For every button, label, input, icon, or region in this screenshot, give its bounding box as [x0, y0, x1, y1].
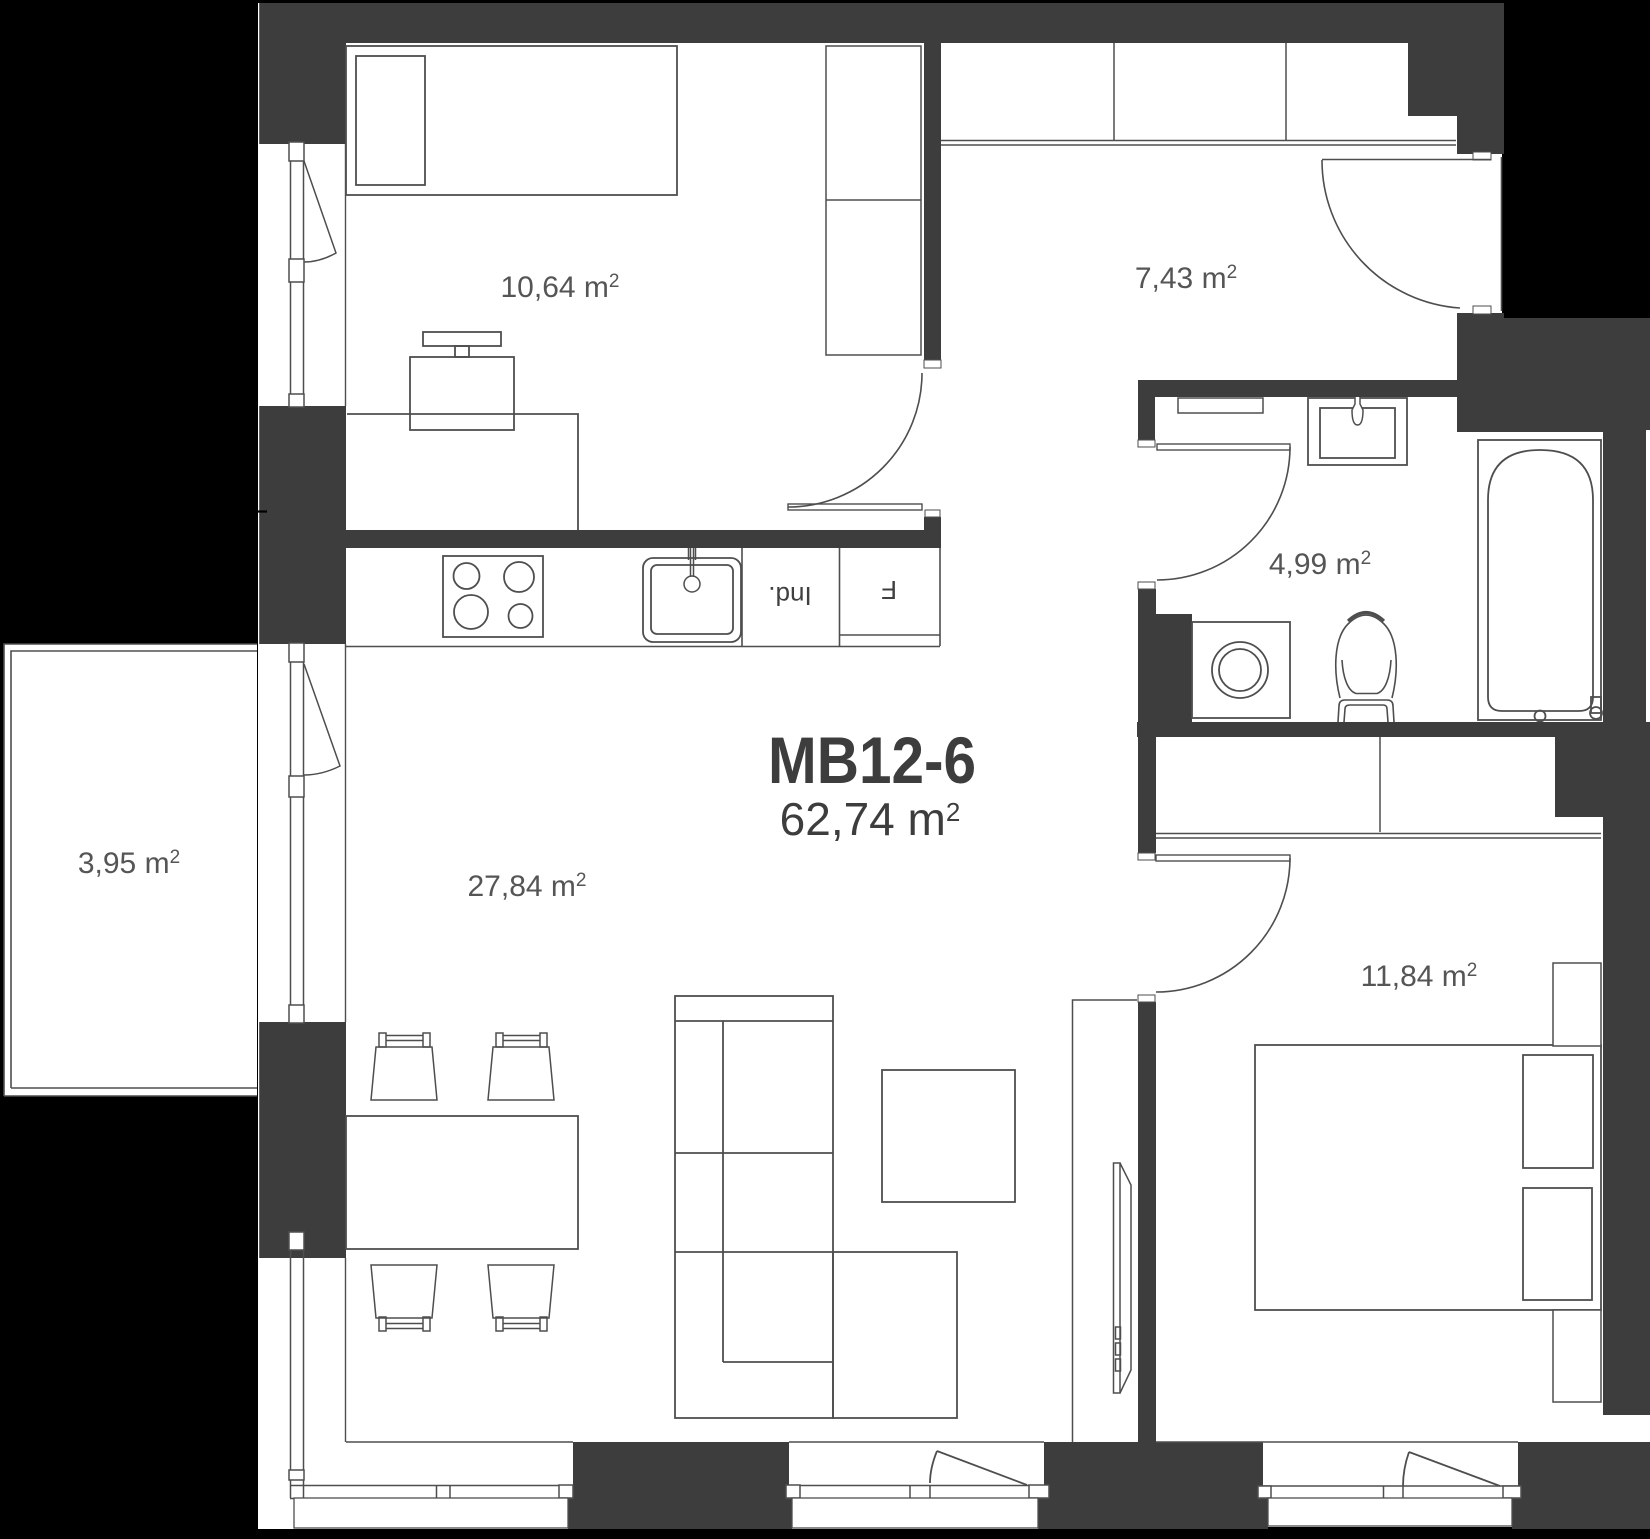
svg-text:MB12-6: MB12-6	[768, 723, 976, 797]
svg-text:4,99 m2: 4,99 m2	[1269, 548, 1371, 581]
svg-text:F: F	[881, 575, 897, 605]
svg-text:7,43 m2: 7,43 m2	[1135, 262, 1237, 295]
svg-text:62,74 m2: 62,74 m2	[780, 793, 961, 845]
svg-text:3,95 m2: 3,95 m2	[78, 847, 180, 880]
svg-text:27,84 m2: 27,84 m2	[468, 870, 587, 903]
svg-text:Ind.: Ind.	[768, 581, 811, 611]
svg-text:11,84 m2: 11,84 m2	[1361, 960, 1478, 993]
svg-text:10,64 m2: 10,64 m2	[501, 271, 620, 304]
